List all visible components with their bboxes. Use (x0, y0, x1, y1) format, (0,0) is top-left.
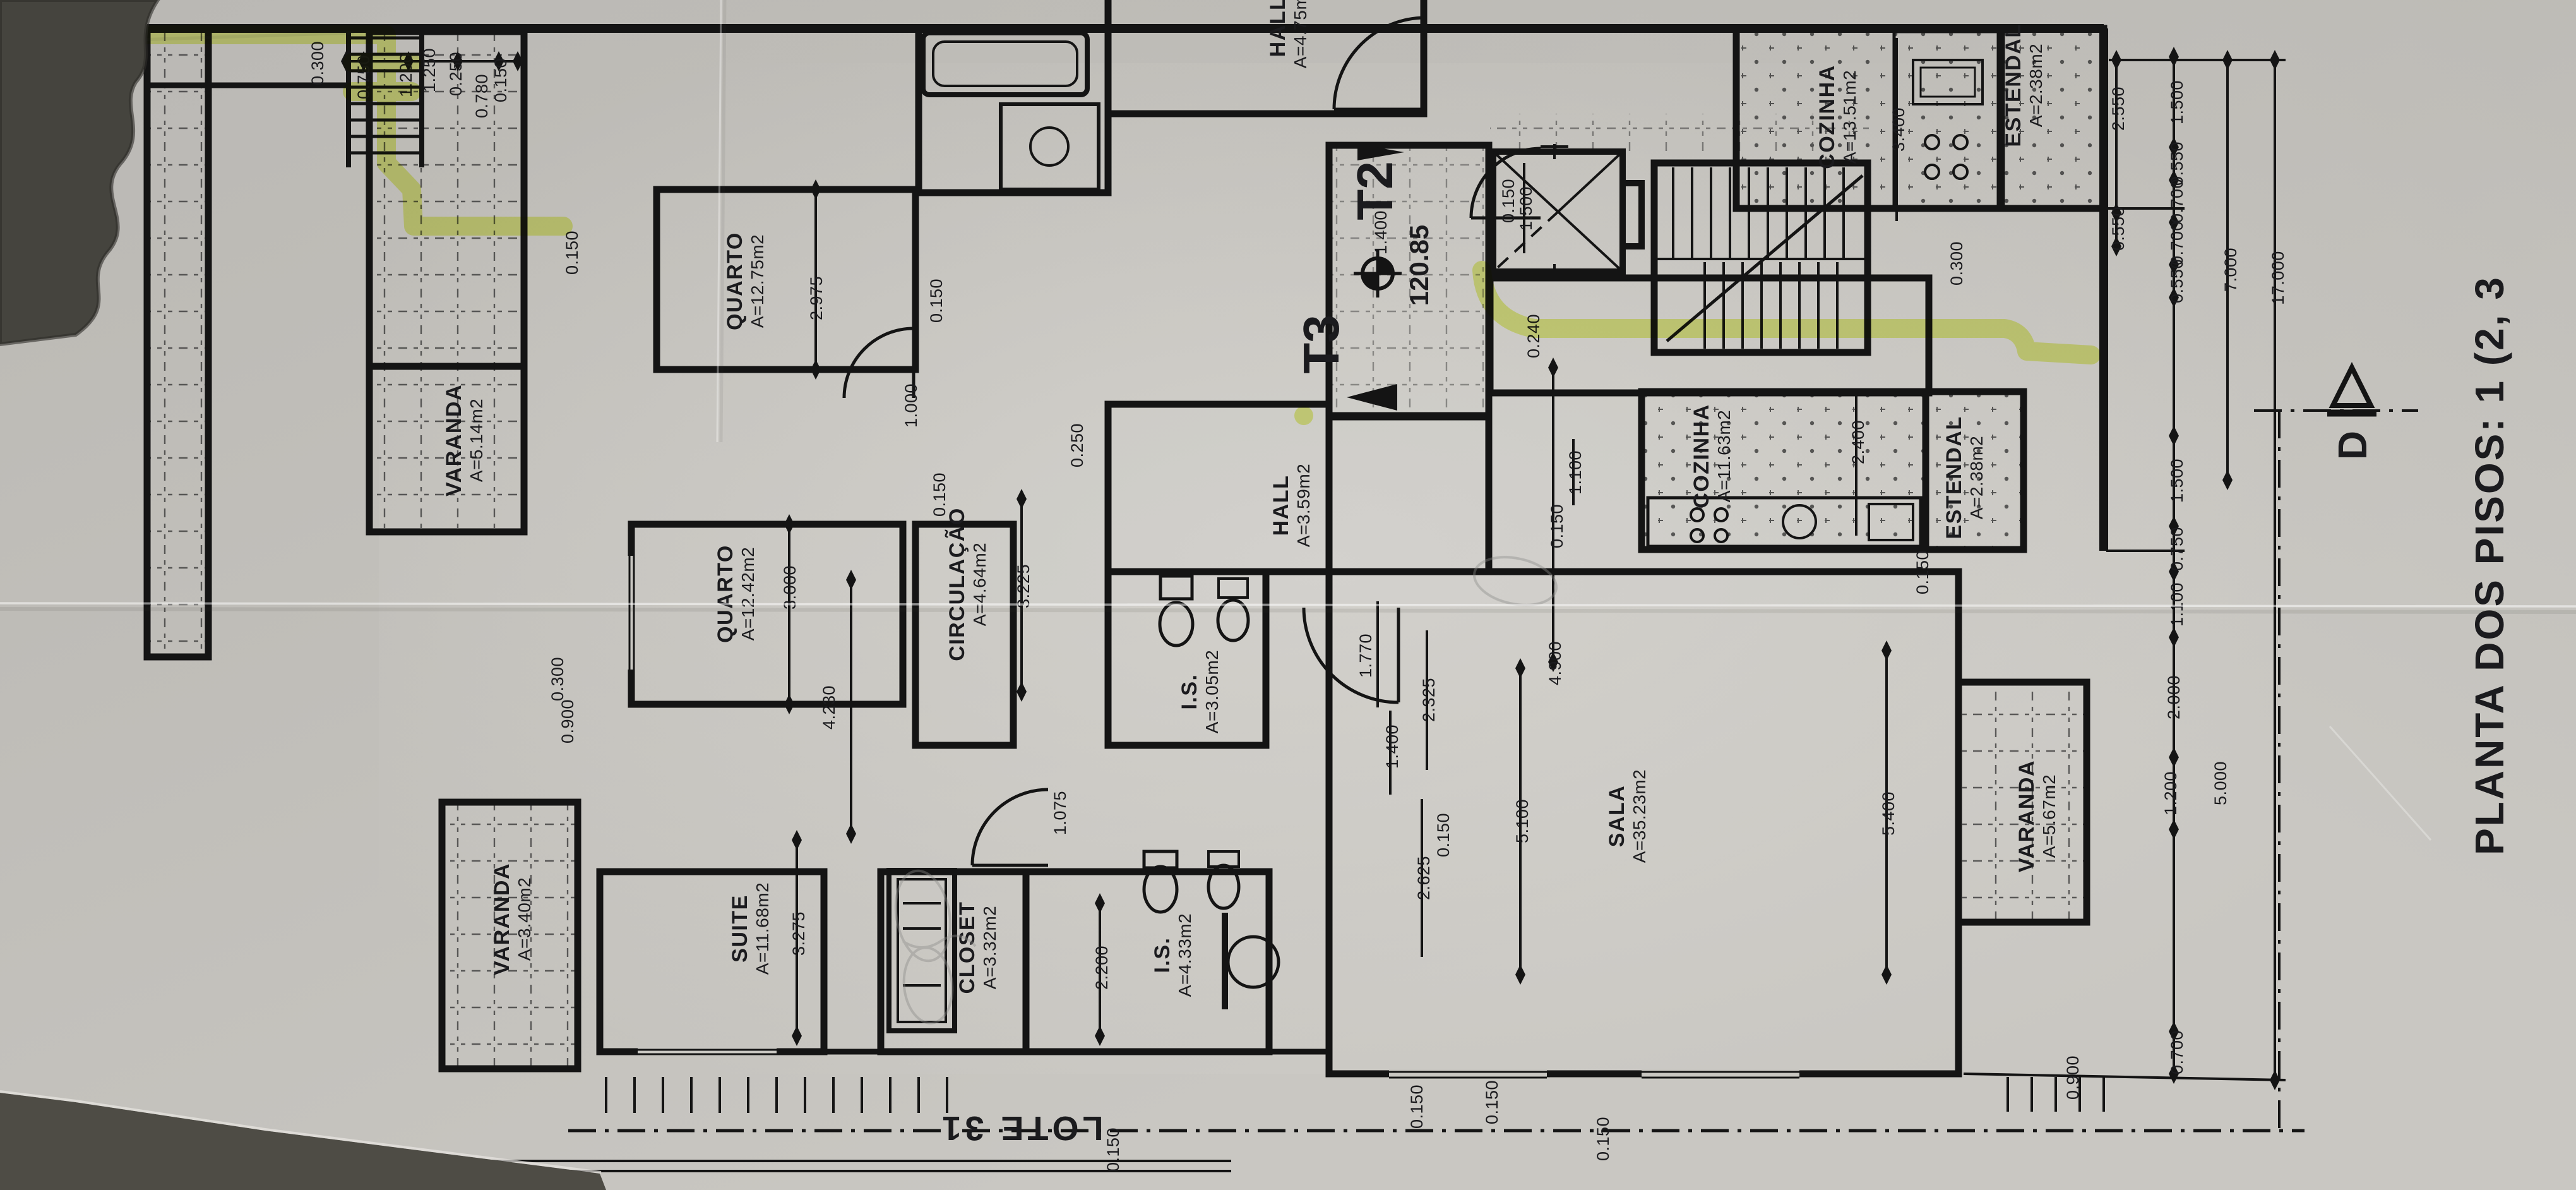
dimension-label: 2.325 (1419, 678, 1438, 722)
dimension-label: 0.700 (2168, 221, 2186, 265)
dimension-label: 1.100 (1566, 450, 1585, 495)
dimension-label: 3.000 (780, 565, 799, 610)
dimension-label: 0.300 (308, 41, 327, 85)
dimension-label: 2.200 (1092, 946, 1111, 990)
room-label: QUARTOA=12.75m2 (723, 232, 767, 330)
dimension-label: 0.300 (548, 657, 567, 701)
dimension-label: 0.550 (2168, 259, 2186, 303)
dimension-label: 0.900 (558, 699, 577, 743)
dimension-label: 0.550 (2109, 207, 2128, 251)
dimension-label: 2.400 (1849, 420, 1868, 464)
dimension-label: 0.250 (1068, 423, 1087, 467)
dimension-label: 0.780 (472, 74, 491, 118)
dimension-label: 1.075 (1051, 791, 1070, 835)
floor-plan-photo: T2 T3 120.85 D PLANTA DOS PISOS: 1 (2, 3… (0, 0, 2576, 1190)
unit-t3-label: T3 (1293, 315, 1349, 373)
room-label: QUARTOA=12.42m2 (713, 544, 758, 643)
level-value: 120.85 (1404, 225, 1434, 306)
dimension-label: 0.150 (927, 279, 946, 323)
dimension-label: 5.000 (2211, 761, 2230, 805)
dimension-label: 0.150 (1913, 550, 1932, 594)
dimension-label: 0.150 (1104, 1127, 1123, 1172)
dimension-label: 0.150 (1482, 1080, 1501, 1124)
dimension-label: 0.900 (2063, 1055, 2082, 1100)
dimension-label: 1.500 (2168, 80, 2186, 124)
dimension-label: 1.400 (1371, 210, 1390, 255)
dimension-label: 0.750 (2168, 527, 2186, 571)
dimension-label: 0.150 (1594, 1117, 1613, 1161)
dimension-label: 1.500 (1517, 186, 1535, 231)
dimension-label: 0.150 (563, 231, 581, 275)
dimension-label: 3.400 (1889, 107, 1908, 152)
dimension-label: 0.150 (1434, 813, 1453, 857)
dimension-label: 3.225 (1014, 564, 1033, 608)
dimension-label: 0.250 (446, 52, 465, 96)
room-label: COZINHAA=13.51m2 (1815, 64, 1859, 169)
room-label: SUITEA=11.68m2 (728, 882, 772, 975)
dimension-label: 5.400 (1879, 791, 1898, 836)
room-label: CLOSETA=3.32m2 (955, 901, 999, 994)
dimension-label: 0.150 (491, 58, 510, 102)
dimension-label: 3.275 (789, 911, 808, 956)
dimension-label: 4.900 (1546, 641, 1565, 685)
room-label: COZINHAA=11.63m2 (1690, 404, 1734, 508)
dimension-label: 1.250 (420, 48, 439, 92)
plan-title: PLANTA DOS PISOS: 1 (2, 3 (2467, 275, 2512, 855)
dimension-label: 0.150 (1407, 1085, 1426, 1129)
dimension-label: 2.550 (2109, 87, 2128, 131)
dimension-label: 0.150 (930, 472, 949, 517)
dimension-label: 0.700 (2168, 1030, 2186, 1074)
dimension-label: 5.100 (1513, 799, 1532, 843)
dimension-label: 17.000 (2269, 251, 2287, 305)
room-label: VARANDAA=5.14m2 (442, 384, 486, 496)
lot-label: LOTE 31 (938, 1109, 1103, 1147)
dimension-label: 1.000 (902, 383, 921, 428)
dimension-label: 4.230 (820, 685, 838, 730)
dimension-label: 7.000 (2221, 248, 2240, 292)
plan-svg: T2 T3 120.85 D PLANTA DOS PISOS: 1 (2, 3… (0, 0, 2576, 1190)
dimension-label: 2.000 (2164, 675, 2183, 719)
dimension-label: 1.200 (2161, 771, 2180, 815)
dimension-label: 1.770 (1356, 634, 1375, 678)
dimension-label: 2.975 (807, 276, 826, 320)
dimension-label: 1.500 (2168, 459, 2186, 503)
dimension-label: 0.150 (1547, 504, 1566, 548)
dimension-label: 0.700 (2168, 179, 2186, 223)
dimension-label: 1.400 (1383, 724, 1402, 769)
dimension-label: 1.100 (2168, 582, 2186, 627)
room-label: HALLA=3.59m2 (1269, 464, 1313, 547)
section-marker-letter: D (2330, 431, 2375, 460)
dimension-label: 0.150 (1499, 179, 1518, 223)
dimension-label: 0.300 (1947, 241, 1966, 285)
room-label: VARANDAA=3.40m2 (490, 863, 534, 975)
room-label: VARANDAA=5.67m2 (2015, 760, 2059, 872)
dimension-label: 2.625 (1414, 856, 1433, 900)
